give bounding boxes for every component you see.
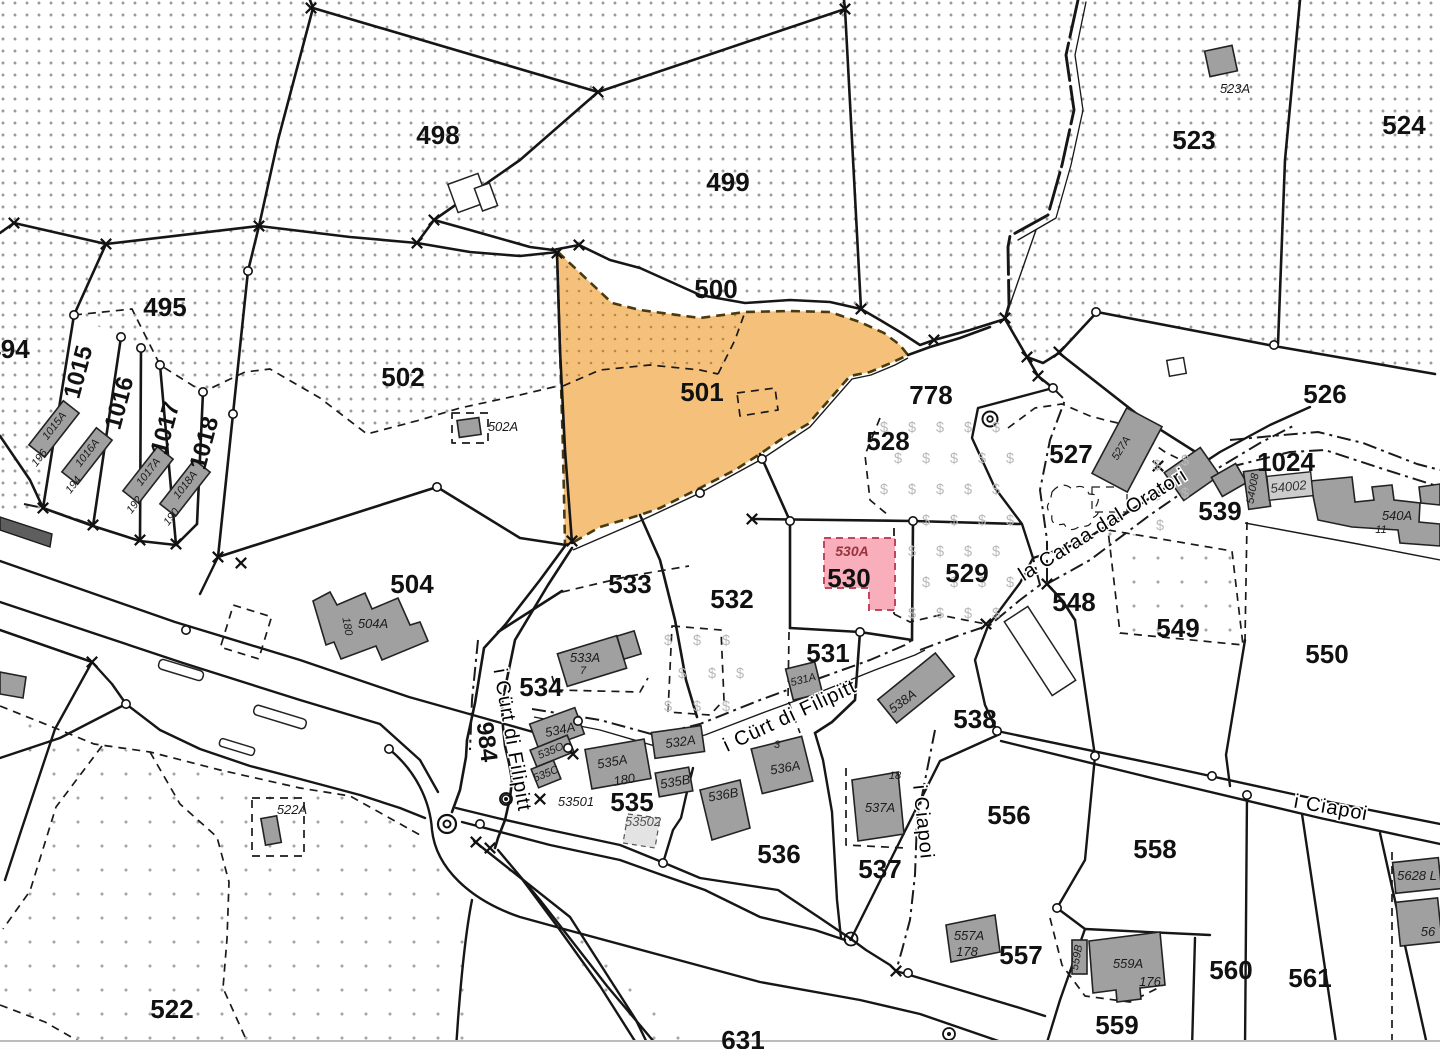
svg-text:537: 537 (858, 854, 901, 884)
svg-text:$: $ (908, 544, 916, 560)
svg-text:522: 522 (150, 994, 193, 1024)
svg-text:536: 536 (757, 839, 800, 869)
svg-text:560: 560 (1209, 955, 1252, 985)
svg-text:$: $ (908, 606, 916, 622)
svg-text:$: $ (1181, 453, 1189, 469)
svg-text:$: $ (992, 420, 1000, 436)
svg-text:$: $ (1156, 518, 1164, 534)
svg-text:$: $ (908, 482, 916, 498)
svg-text:523: 523 (1172, 125, 1215, 155)
svg-text:556: 556 (987, 800, 1030, 830)
svg-text:778: 778 (909, 380, 952, 410)
svg-text:$: $ (964, 482, 972, 498)
svg-text:$: $ (664, 699, 672, 715)
svg-text:534: 534 (519, 672, 563, 702)
svg-text:$: $ (664, 633, 672, 649)
svg-text:498: 498 (416, 120, 459, 150)
svg-text:502A: 502A (488, 419, 518, 434)
svg-text:7: 7 (580, 665, 587, 677)
svg-text:499: 499 (706, 167, 749, 197)
svg-text:$: $ (936, 420, 944, 436)
svg-text:$: $ (693, 633, 701, 649)
svg-text:500: 500 (694, 274, 737, 304)
svg-text:$: $ (880, 482, 888, 498)
svg-text:539: 539 (1198, 496, 1241, 526)
svg-text:$: $ (722, 633, 730, 649)
svg-text:3: 3 (774, 739, 781, 751)
svg-text:$: $ (736, 666, 744, 682)
svg-text:$: $ (992, 482, 1000, 498)
svg-text:$: $ (992, 606, 1000, 622)
svg-text:524: 524 (1382, 110, 1426, 140)
svg-text:530A: 530A (835, 543, 868, 559)
svg-text:178: 178 (956, 944, 978, 959)
svg-text:176: 176 (1139, 974, 1161, 989)
svg-text:$: $ (936, 606, 944, 622)
svg-text:1024: 1024 (1257, 447, 1315, 477)
svg-text:631: 631 (721, 1025, 764, 1049)
svg-text:$: $ (722, 699, 730, 715)
svg-text:$: $ (936, 544, 944, 560)
svg-text:526: 526 (1303, 379, 1346, 409)
svg-text:495: 495 (143, 292, 186, 322)
svg-text:531: 531 (806, 638, 849, 668)
svg-text:502: 502 (381, 362, 424, 392)
svg-text:504A: 504A (358, 616, 388, 631)
svg-text:$: $ (992, 544, 1000, 560)
svg-text:$: $ (964, 420, 972, 436)
svg-text:53501: 53501 (558, 794, 594, 809)
svg-text:535: 535 (610, 787, 653, 817)
svg-text:522A: 522A (277, 802, 307, 817)
svg-text:$: $ (1153, 458, 1161, 474)
svg-text:540A: 540A (1382, 508, 1412, 523)
svg-text:558: 558 (1133, 834, 1176, 864)
svg-text:527: 527 (1049, 439, 1092, 469)
svg-text:984: 984 (471, 720, 503, 764)
svg-text:538: 538 (953, 704, 996, 734)
svg-text:53502: 53502 (625, 814, 662, 829)
svg-text:$: $ (978, 513, 986, 529)
svg-text:$: $ (964, 606, 972, 622)
svg-text:$: $ (1006, 451, 1014, 467)
svg-text:559A: 559A (1113, 956, 1143, 971)
svg-text:532: 532 (710, 584, 753, 614)
svg-text:529: 529 (945, 558, 988, 588)
svg-text:548: 548 (1052, 587, 1095, 617)
svg-text:501: 501 (680, 377, 723, 407)
svg-text:18: 18 (889, 770, 902, 782)
svg-text:533A: 533A (570, 650, 600, 665)
svg-text:$: $ (678, 666, 686, 682)
svg-text:549: 549 (1156, 613, 1199, 643)
svg-text:$: $ (936, 482, 944, 498)
svg-text:557: 557 (999, 940, 1042, 970)
svg-text:$: $ (1006, 513, 1014, 529)
svg-text:557A: 557A (954, 928, 984, 943)
svg-text:559: 559 (1095, 1010, 1138, 1040)
svg-text:494: 494 (0, 334, 30, 364)
svg-text:533: 533 (608, 569, 651, 599)
svg-text:561: 561 (1288, 963, 1331, 993)
svg-text:5628 L: 5628 L (1397, 868, 1437, 883)
svg-text:504: 504 (390, 569, 434, 599)
svg-text:550: 550 (1305, 639, 1348, 669)
svg-text:537A: 537A (865, 800, 895, 815)
svg-text:$: $ (693, 699, 701, 715)
svg-text:$: $ (1006, 575, 1014, 591)
svg-text:$: $ (978, 451, 986, 467)
svg-text:$: $ (950, 513, 958, 529)
svg-text:$: $ (950, 451, 958, 467)
svg-text:$: $ (922, 513, 930, 529)
svg-text:528: 528 (866, 426, 909, 456)
svg-text:56: 56 (1421, 924, 1436, 939)
svg-text:$: $ (708, 666, 716, 682)
svg-text:11: 11 (1375, 524, 1386, 536)
svg-text:530: 530 (827, 563, 870, 593)
svg-text:523A: 523A (1220, 81, 1250, 96)
svg-text:$: $ (922, 451, 930, 467)
svg-text:$: $ (922, 575, 930, 591)
